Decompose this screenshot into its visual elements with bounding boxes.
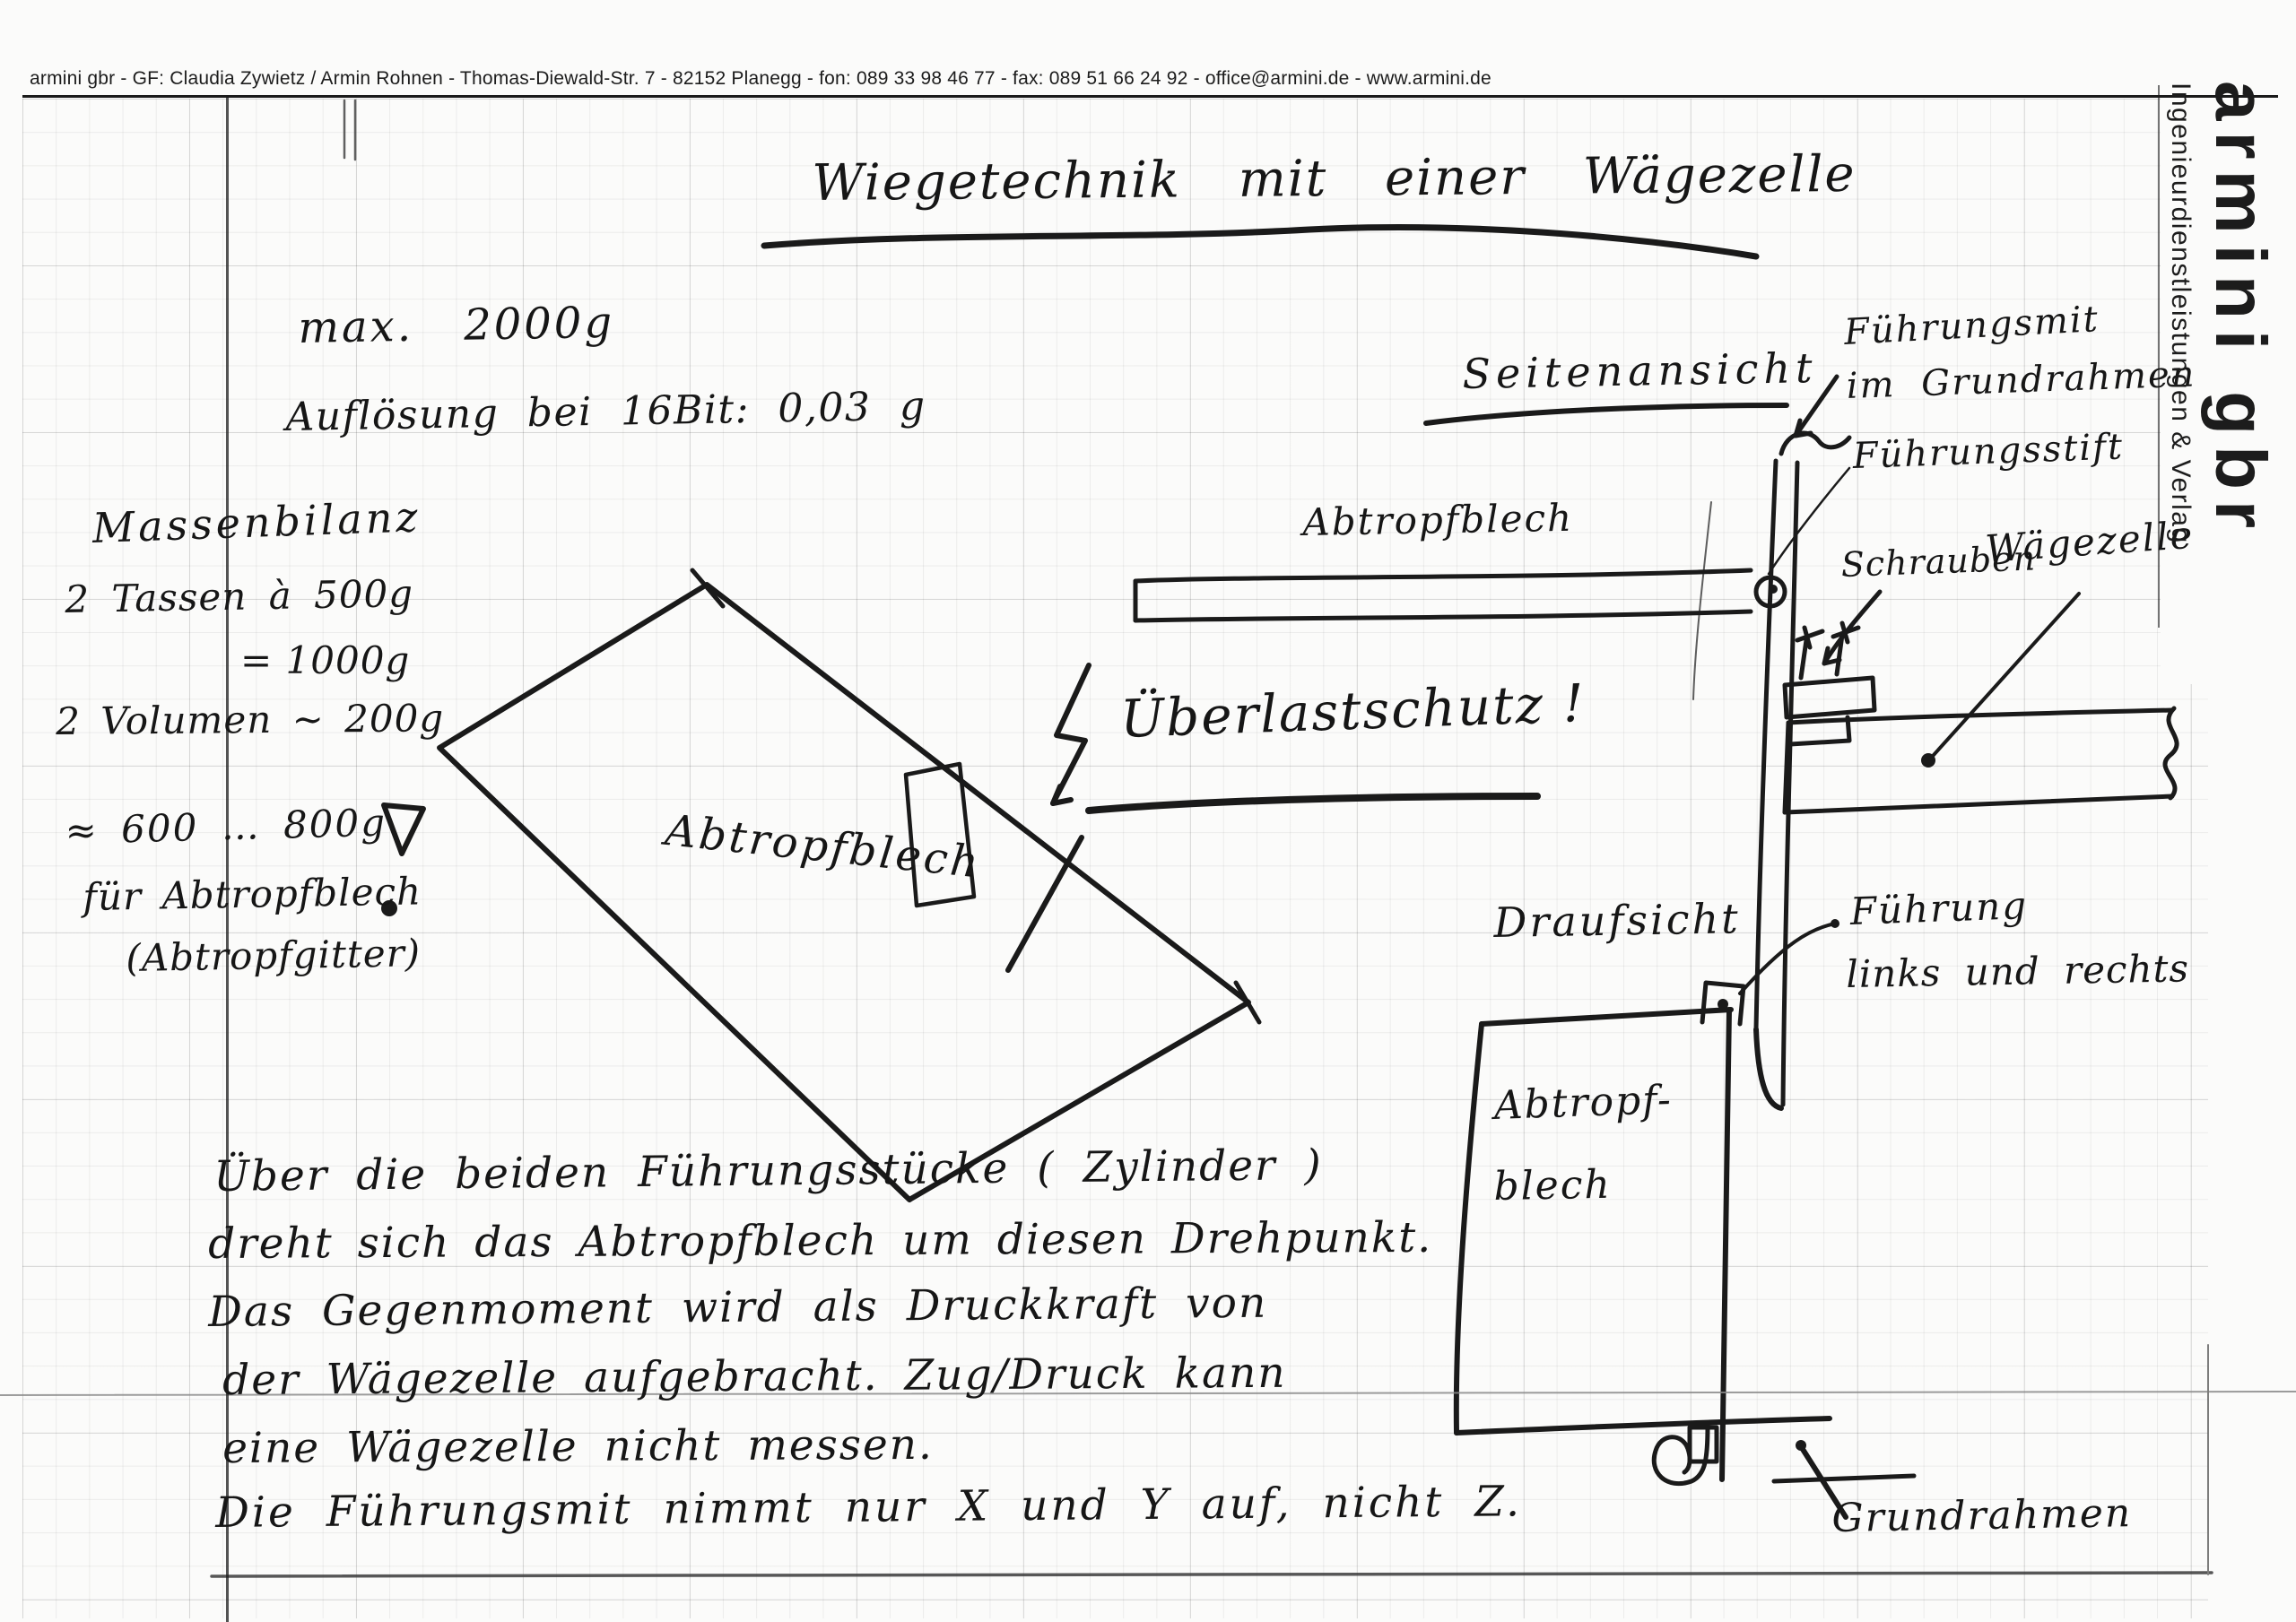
brand-logo-text: armini gbr [2199, 81, 2282, 619]
paragraph-line-5: eine Wägezelle nicht messen. [222, 1420, 934, 1473]
letterhead-contact-line: armini gbr - GF: Claudia Zywietz / Armin… [30, 68, 1492, 90]
corner-tick-icon [1236, 983, 1259, 1022]
tray-outline-top [1482, 1010, 1731, 1024]
mass-balance-volumes: 2 Volumen ~ 200g [56, 696, 444, 743]
guide-post [1756, 461, 1776, 1029]
top-view-heading: Draufsicht [1493, 894, 1741, 947]
squiggle-icon [1781, 433, 1849, 454]
overload-underline [1089, 796, 1537, 811]
paragraph-line-2: dreht sich das Abtropfblech um diesen Dr… [208, 1213, 1432, 1269]
side-view-underline [1426, 405, 1787, 423]
side-view-heading: Seitenansicht [1462, 343, 1818, 398]
guide-pin-pointer-line [1769, 468, 1849, 574]
top-view-guide-line1: Führung [1849, 883, 2029, 933]
guide-bracket-icon [1654, 1426, 1717, 1484]
top-view-sketch [1457, 919, 1914, 1517]
tray-outline-left [1457, 1024, 1482, 1433]
guide-block-icon [1702, 983, 1744, 1024]
sidebar-divider [2158, 85, 2160, 628]
page-title: Wiegetechnik mit einer Wägezelle [812, 145, 1857, 213]
tray-bar-top [1135, 570, 1751, 581]
plate-sketch [439, 570, 1259, 1200]
lightning-arrow-icon [1053, 665, 1089, 803]
mass-balance-cups: 2 Tassen à 500g [65, 571, 413, 621]
top-view-plate-line1: Abtropf- [1493, 1077, 1674, 1129]
break-squiggle-icon [2165, 708, 2177, 798]
paragraph-line-4: der Wägezelle aufgebracht. Zug/Druck kan… [222, 1349, 1287, 1405]
stray-stroke [1008, 837, 1082, 970]
mass-balance-for-plate: für Abtropfblech [83, 869, 422, 919]
top-view-guide-line2: links und rechts [1846, 946, 2189, 996]
top-view-frame-label: Grundrahmen [1831, 1490, 2133, 1541]
paragraph-line-3: Das Gegenmoment wird als Druckkraft von [208, 1279, 1267, 1337]
mass-balance-cups-sum: = 1000g [240, 638, 410, 682]
spec-max-load: max. 2000g [298, 298, 615, 353]
load-cell-pointer-line [1934, 594, 2079, 755]
tray-outline-bottom [1457, 1418, 1830, 1433]
mass-balance-alt-plate: (Abtropfgitter) [126, 931, 421, 980]
side-view-plate-label: Abtropfblech [1302, 496, 1573, 544]
title-underline [764, 227, 1756, 256]
left-margin-line [226, 98, 229, 1622]
tray-outline-right [1722, 1010, 1729, 1479]
bracket [1785, 678, 1874, 717]
scanned-note-page: { "letterhead": { "contact_line": "armin… [0, 0, 2296, 1622]
pointer-arrow-icon [1824, 592, 1880, 664]
tray-bar-bottom [1135, 612, 1751, 620]
top-view-plate-line2: blech [1493, 1162, 1612, 1210]
letterhead-divider [22, 95, 2278, 98]
brand-tagline: Ingenieurdienstleistungen & Verlag [2165, 82, 2196, 656]
